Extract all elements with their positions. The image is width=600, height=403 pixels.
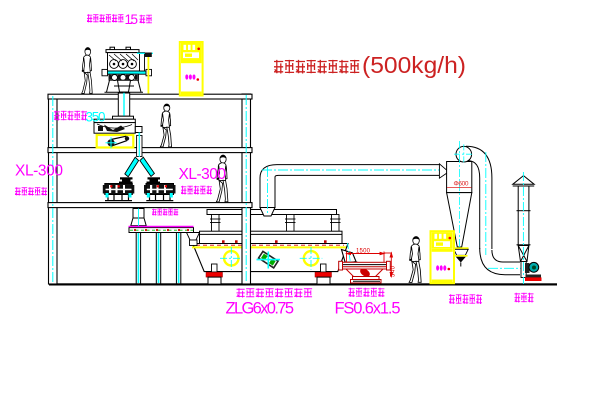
svg-text:350: 350 xyxy=(86,110,106,125)
svg-text:(500kg/h): (500kg/h) xyxy=(362,52,466,78)
svg-text:540: 540 xyxy=(391,265,397,277)
svg-text:Φ600: Φ600 xyxy=(454,181,469,188)
svg-text:ZLG6x0.75: ZLG6x0.75 xyxy=(226,300,295,318)
svg-text:1500: 1500 xyxy=(356,249,371,255)
svg-text:XL-300: XL-300 xyxy=(15,163,63,180)
svg-text:1.5: 1.5 xyxy=(125,12,139,27)
svg-text:FS0.6x1.5: FS0.6x1.5 xyxy=(335,300,401,318)
svg-text:XL-300: XL-300 xyxy=(179,166,227,183)
